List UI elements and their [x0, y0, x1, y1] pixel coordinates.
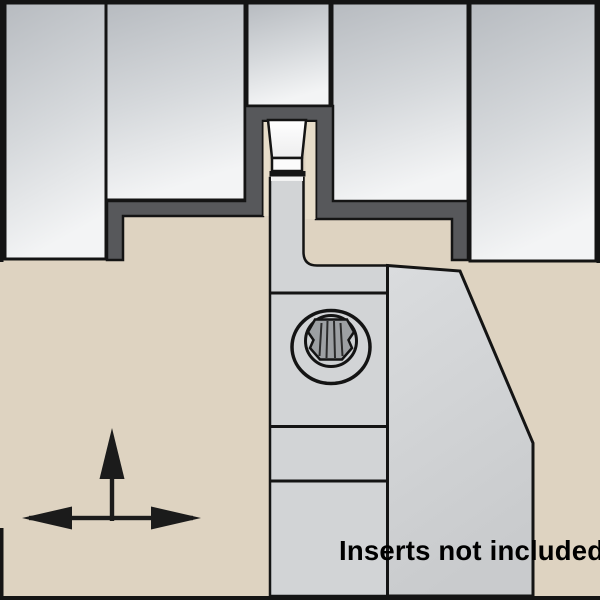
border-top — [0, 0, 600, 4]
caption: Inserts not included — [339, 535, 600, 567]
clearance-strip-right — [306, 122, 316, 219]
torx-ridge — [327, 321, 328, 358]
workpiece-block-left-inner — [106, 3, 245, 200]
insert-body — [268, 120, 306, 158]
torx-drive-icon — [308, 320, 354, 360]
torx-ridge — [334, 321, 335, 358]
insert-seat-line — [270, 171, 306, 177]
arrow-up-stem — [110, 477, 114, 521]
border-left-lower — [0, 528, 4, 600]
workpiece-block-right-inner — [332, 3, 468, 203]
grooving-tool-diagram — [0, 0, 600, 600]
workpiece-block-right-outer — [470, 3, 596, 261]
workpiece-block-center-tab — [247, 3, 330, 106]
insert-seat-shim — [271, 177, 303, 182]
border-bottom — [0, 596, 600, 600]
insert-lower-face — [272, 158, 302, 171]
workpiece-block-left-outer — [5, 3, 106, 259]
border-right — [597, 0, 600, 263]
border-left-upper — [0, 0, 4, 262]
insert-pocket — [268, 120, 306, 181]
illustration-canvas: Inserts not included — [0, 0, 600, 600]
